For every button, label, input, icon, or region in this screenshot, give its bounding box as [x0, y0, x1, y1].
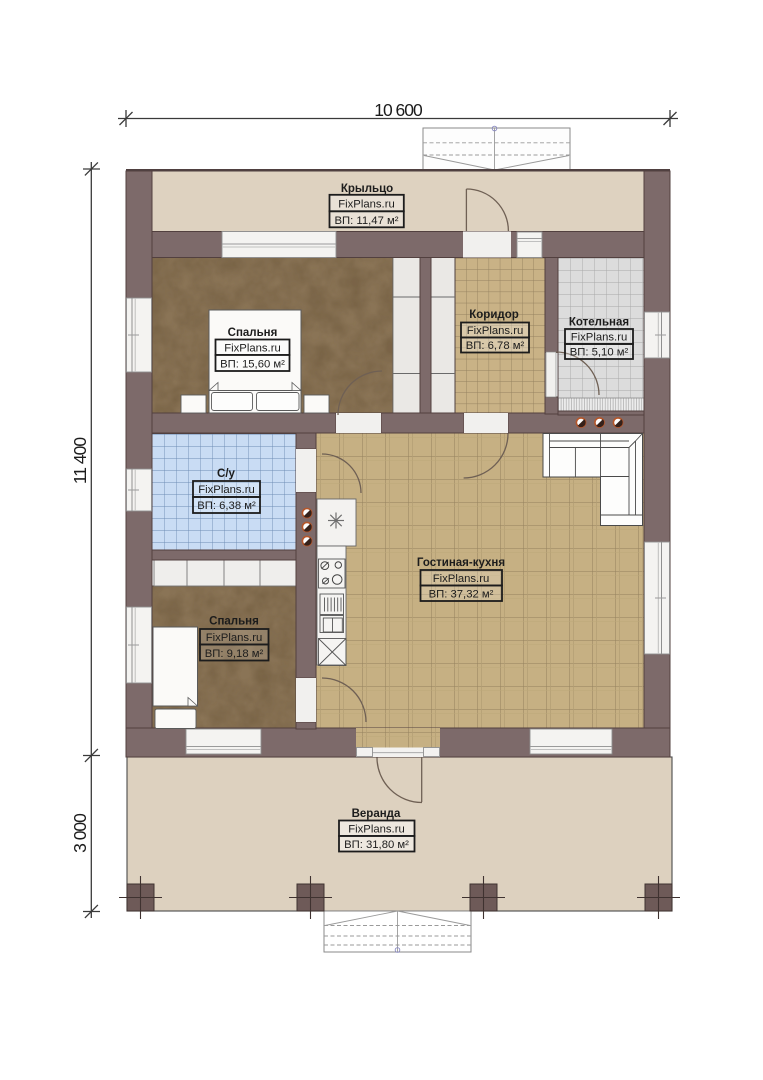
svg-text:Спальня: Спальня	[209, 616, 259, 628]
svg-text:Гостиная-кухня: Гостиная-кухня	[417, 557, 505, 569]
svg-text:11 400: 11 400	[70, 437, 90, 484]
svg-text:ВП: 9,18 м²: ВП: 9,18 м²	[205, 648, 264, 660]
svg-text:ВП: 15,60 м²: ВП: 15,60 м²	[220, 359, 285, 371]
svg-text:ВП: 37,32 м²: ВП: 37,32 м²	[429, 589, 494, 601]
svg-text:Спальня: Спальня	[228, 327, 278, 339]
svg-text:ВП: 5,10 м²: ВП: 5,10 м²	[570, 347, 629, 359]
svg-text:Веранда: Веранда	[352, 808, 401, 820]
svg-text:ВП: 31,80 м²: ВП: 31,80 м²	[344, 839, 409, 851]
svg-text:Коридор: Коридор	[469, 309, 519, 321]
svg-text:ВП: 6,78 м²: ВП: 6,78 м²	[466, 340, 525, 352]
svg-text:С/у: С/у	[217, 468, 236, 480]
svg-text:ВП: 11,47 м²: ВП: 11,47 м²	[334, 215, 398, 227]
svg-text:FixPlans.ru: FixPlans.ru	[433, 573, 490, 585]
svg-text:ВП: 6,38 м²: ВП: 6,38 м²	[197, 500, 256, 512]
svg-text:FixPlans.ru: FixPlans.ru	[198, 484, 255, 496]
svg-text:Котельная: Котельная	[569, 317, 629, 329]
svg-text:FixPlans.ru: FixPlans.ru	[206, 632, 263, 644]
svg-text:FixPlans.ru: FixPlans.ru	[467, 325, 524, 337]
svg-text:FixPlans.ru: FixPlans.ru	[348, 824, 405, 836]
svg-text:FixPlans.ru: FixPlans.ru	[571, 332, 628, 344]
svg-text:FixPlans.ru: FixPlans.ru	[224, 343, 281, 355]
svg-text:FixPlans.ru: FixPlans.ru	[338, 198, 395, 210]
svg-text:Крыльцо: Крыльцо	[341, 183, 393, 195]
svg-text:3 000: 3 000	[70, 813, 90, 853]
svg-text:10 600: 10 600	[374, 100, 423, 120]
